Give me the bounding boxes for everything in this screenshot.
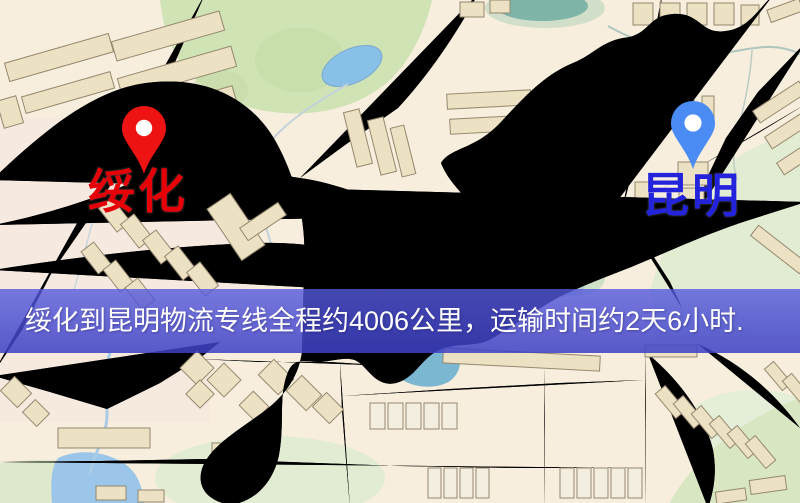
map-container: 绥化到昆明物流专线全程约4006公里，运输时间约2天6小时. 绥化 昆明 xyxy=(0,0,800,503)
destination-pin-icon xyxy=(664,93,722,173)
origin-city-label: 绥化 xyxy=(88,170,188,217)
origin-pin-icon xyxy=(115,98,173,178)
destination-city-label: 昆明 xyxy=(642,174,742,221)
route-info-text: 绥化到昆明物流专线全程约4006公里，运输时间约2天6小时. xyxy=(0,289,800,353)
route-info-banner: 绥化到昆明物流专线全程约4006公里，运输时间约2天6小时. xyxy=(0,289,800,353)
map-canvas xyxy=(0,0,800,503)
